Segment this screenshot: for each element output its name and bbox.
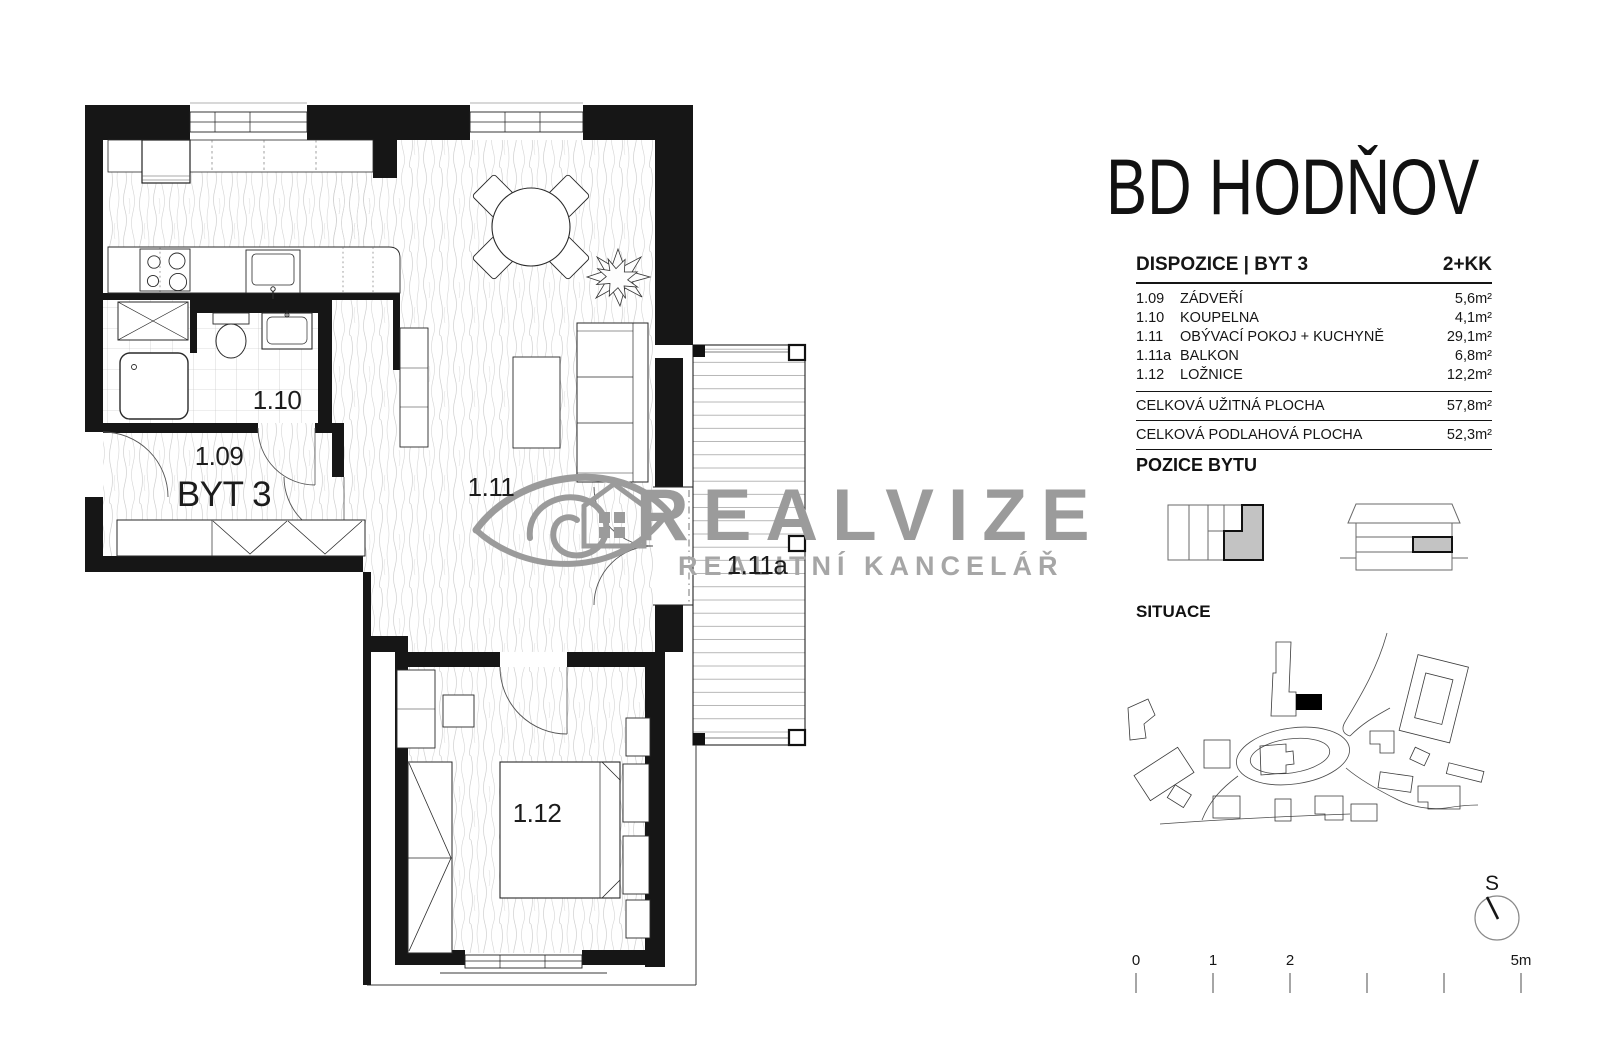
elevation-position-diagram	[1340, 504, 1468, 570]
site-map	[1100, 628, 1520, 843]
total-usable-row: CELKOVÁ UŽITNÁ PLOCHA 57,8m²	[1136, 392, 1492, 421]
room-name: ZÁDVEŘÍ	[1180, 290, 1455, 309]
room-name: OBÝVACÍ POKOJ + KUCHYNĚ	[1180, 328, 1447, 347]
room-rows: 1.09 ZÁDVEŘÍ 5,6m² 1.10 KOUPELNA 4,1m² 1…	[1136, 284, 1492, 385]
total-area: 52,3m²	[1447, 427, 1492, 443]
compass-north-label: S	[1485, 872, 1499, 895]
dispozice-table: DISPOZICE | BYT 3 2+KK 1.09 ZÁDVEŘÍ 5,6m…	[1136, 254, 1492, 450]
scale-labels: 0 1 2 5m	[1132, 952, 1532, 969]
room-area: 12,2m²	[1447, 366, 1492, 385]
room-name: BALKON	[1180, 347, 1455, 366]
scale-bar: 0 1 2 5m	[1100, 925, 1570, 1010]
page-title: BD HODŇOV	[1106, 141, 1479, 233]
room-code: 1.10	[1136, 309, 1180, 328]
room-labels: 1.09 BYT 3 1.10 1.11 1.11a 1.12	[0, 0, 820, 1046]
scale-label-5m: 5m	[1511, 952, 1532, 969]
room-name: LOŽNICE	[1180, 366, 1447, 385]
room-area: 29,1m²	[1447, 328, 1492, 347]
floorplan-sheet: REALVIZE REALITNÍ KANCELÁŘ 1.09 BYT 3 1.…	[0, 0, 1600, 1046]
total-name: CELKOVÁ PODLAHOVÁ PLOCHA	[1136, 427, 1362, 443]
label-living: 1.11	[468, 472, 515, 502]
room-code: 1.12	[1136, 366, 1180, 385]
subject-building-marker	[1296, 694, 1322, 710]
table-row: 1.11a BALKON 6,8m²	[1136, 347, 1492, 366]
label-apartment: BYT 3	[177, 475, 271, 514]
label-bedroom: 1.12	[513, 798, 562, 828]
table-row: 1.09 ZÁDVEŘÍ 5,6m²	[1136, 290, 1492, 309]
label-entry: 1.09	[195, 441, 244, 471]
buildings	[1128, 642, 1484, 821]
scale-label-2: 2	[1286, 952, 1294, 969]
pozice-heading: POZICE BYTU	[1136, 455, 1257, 476]
total-floor-row: CELKOVÁ PODLAHOVÁ PLOCHA 52,3m²	[1136, 421, 1492, 450]
compass-needle	[1487, 897, 1498, 919]
room-area: 6,8m²	[1455, 347, 1492, 366]
roads	[1160, 633, 1478, 824]
room-area: 4,1m²	[1455, 309, 1492, 328]
total-name: CELKOVÁ UŽITNÁ PLOCHA	[1136, 398, 1325, 414]
room-name: KOUPELNA	[1180, 309, 1455, 328]
scale-ticks	[1136, 973, 1521, 993]
situace-heading: SITUACE	[1136, 602, 1211, 622]
scale-label-1: 1	[1209, 952, 1217, 969]
room-code: 1.11a	[1136, 347, 1180, 366]
unit-position-diagrams	[1160, 495, 1470, 575]
room-code: 1.11	[1136, 328, 1180, 347]
scale-label-0: 0	[1132, 952, 1140, 969]
table-row: 1.10 KOUPELNA 4,1m²	[1136, 309, 1492, 328]
label-balcony: 1.11a	[727, 550, 789, 580]
total-area: 57,8m²	[1447, 398, 1492, 414]
table-row: 1.11 OBÝVACÍ POKOJ + KUCHYNĚ 29,1m²	[1136, 328, 1492, 347]
floor-position-diagram	[1168, 505, 1263, 560]
apartment-type: 2+KK	[1443, 254, 1492, 276]
room-area: 5,6m²	[1455, 290, 1492, 309]
room-code: 1.09	[1136, 290, 1180, 309]
table-row: 1.12 LOŽNICE 12,2m²	[1136, 366, 1492, 385]
label-bathroom: 1.10	[253, 385, 302, 415]
dispozice-heading: DISPOZICE | BYT 3	[1136, 254, 1308, 276]
